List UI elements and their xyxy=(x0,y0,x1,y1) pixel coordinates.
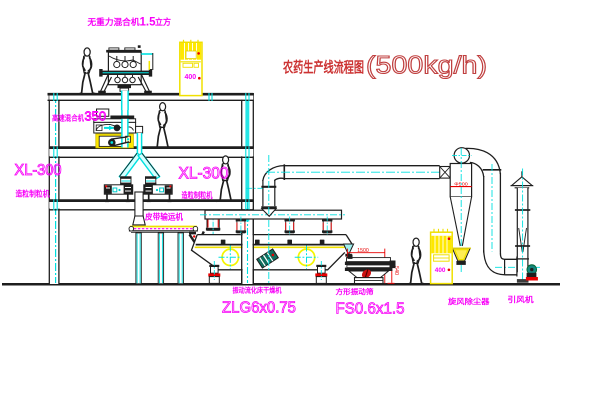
svg-text:旋风除尘器: 旋风除尘器 xyxy=(447,297,491,306)
svg-text:方形振动筛: 方形振动筛 xyxy=(336,287,374,296)
svg-text:350: 350 xyxy=(85,109,107,124)
svg-text:振动流化床干燥机: 振动流化床干燥机 xyxy=(233,286,282,295)
svg-text:FS0.6x1.5: FS0.6x1.5 xyxy=(336,301,405,318)
svg-text:皮带输运机: 皮带输运机 xyxy=(144,212,183,222)
svg-text:XL-300: XL-300 xyxy=(15,162,62,179)
svg-text:高速混合机: 高速混合机 xyxy=(52,113,84,123)
svg-text:400: 400 xyxy=(435,267,446,274)
svg-text:1.5: 1.5 xyxy=(140,17,157,29)
svg-text:(500kg/h): (500kg/h) xyxy=(366,52,487,80)
svg-text:引风机: 引风机 xyxy=(508,294,534,304)
svg-text:造粒制粒机: 造粒制粒机 xyxy=(182,190,213,200)
svg-text:XL-300: XL-300 xyxy=(179,165,229,183)
svg-text:造粒制粒机: 造粒制粒机 xyxy=(16,189,50,199)
svg-text:1500: 1500 xyxy=(357,248,369,254)
svg-text:立方: 立方 xyxy=(155,16,171,27)
svg-text:ZLG6x0.75: ZLG6x0.75 xyxy=(222,300,296,317)
svg-text:农药生产线流程图: 农药生产线流程图 xyxy=(282,59,364,77)
svg-text:400: 400 xyxy=(185,74,197,81)
svg-text:无重力混合机: 无重力混合机 xyxy=(87,16,140,27)
